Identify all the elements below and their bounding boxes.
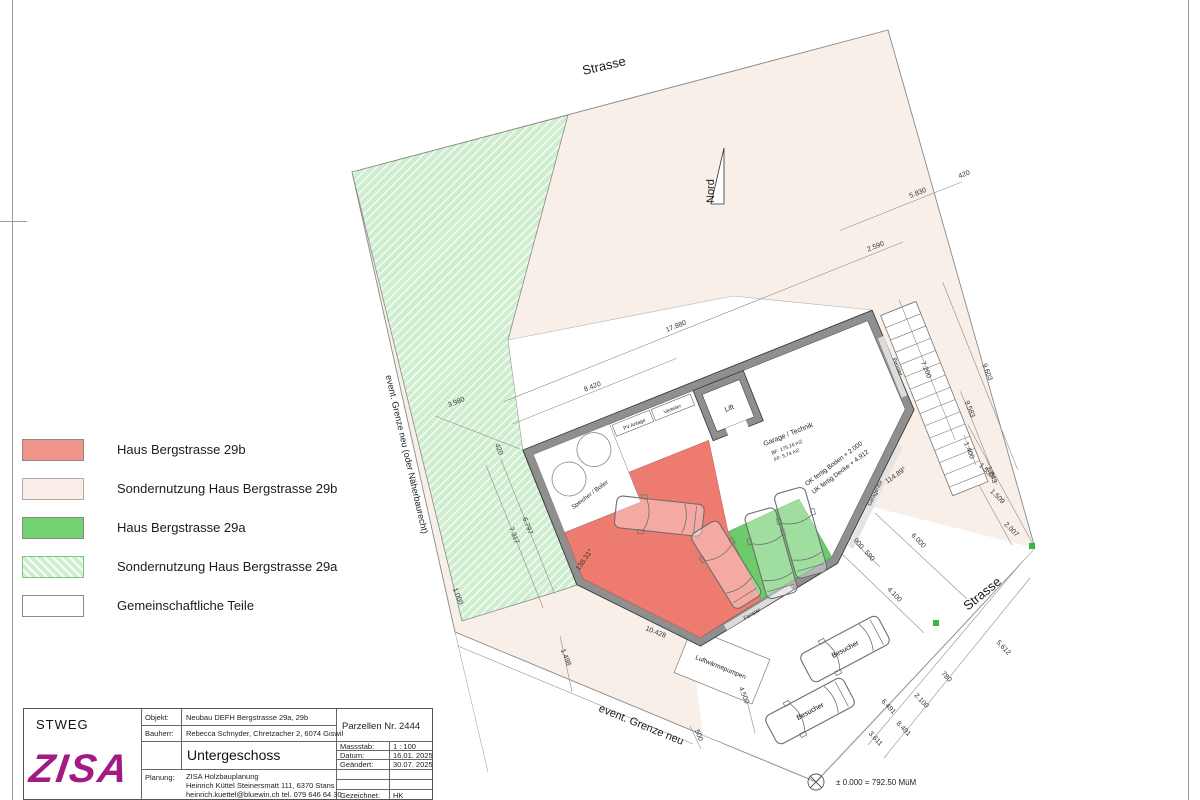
geaendert-label: Geändert: [340,760,373,769]
gezeichnet-value: HK [393,791,403,800]
north-label: Nord [705,179,717,203]
site-plan: LiftPV AnlageVerteilerSpeicher / BoilerG… [0,0,1200,800]
legend-item: Gemeinschaftliche Teile [22,586,352,625]
legend-item: Haus Bergstrasse 29b [22,430,352,469]
dim-label: 2.100 [913,692,930,710]
bauherr-label: Bauherr: [145,729,174,738]
legend-swatch [22,517,84,539]
dim-label: 420 [958,169,972,180]
dim-label: 3.611 [867,730,884,747]
planung-line2: Heinrich Küttel Steinersmatt 111, 6370 S… [186,781,335,790]
legend-item: Haus Bergstrasse 29a [22,508,352,547]
legend-item: Sondernutzung Haus Bergstrasse 29a [22,547,352,586]
legend-label: Sondernutzung Haus Bergstrasse 29a [117,559,337,574]
planung-line1: ZISA Holzbauplanung [186,772,259,781]
massstab-label: Massstab: [340,742,374,751]
legend-label: Sondernutzung Haus Bergstrasse 29b [117,481,337,496]
legend-swatch [22,439,84,461]
legend-swatch [22,595,84,617]
street-label-top: Strasse [581,53,627,78]
planung-label: Planung: [145,773,175,782]
legend-label: Gemeinschaftliche Teile [117,598,254,613]
drawing-page: LiftPV AnlageVerteilerSpeicher / BoilerG… [0,0,1200,800]
dim-label: 8.491 [895,720,912,738]
dim-label: 5.612 [995,639,1012,657]
datum-label: Datum: [340,751,364,760]
gezeichnet-label: Gezeichnet: [340,791,380,800]
geaendert-value: 30.07. 2025 [393,760,433,769]
legend-swatch [22,478,84,500]
planung-line3: heinrich.kuettel@bluewin.ch tel. 079 646… [186,790,342,799]
bauherr-value: Rebecca Schnyder, Chretzacher 2, 6074 Gi… [186,729,343,738]
benchmark-label: ± 0.000 = 792.50 MüM [836,778,917,787]
datum-value: 16.01. 2025 [393,751,433,760]
legend: Haus Bergstrasse 29bSondernutzung Haus B… [22,430,352,625]
boundary-extension [455,632,488,772]
dim-label: 780 [940,670,953,683]
objekt-label: Objekt: [145,713,169,722]
org-name: STWEG [36,717,89,732]
objekt-value: Neubau DEFH Bergstrasse 29a, 29b [186,713,308,722]
legend-label: Haus Bergstrasse 29a [117,520,246,535]
legend-swatch [22,556,84,578]
title-block: STWEG ZISA Objekt: Neubau DEFH Bergstras… [23,708,433,800]
parcel-number: Parzellen Nr. 2444 [342,721,420,732]
plan-title: Untergeschoss [187,747,280,763]
massstab-value: 1 : 100 [393,742,416,751]
legend-item: Sondernutzung Haus Bergstrasse 29b [22,469,352,508]
zisa-logo: ZISA [27,749,132,789]
legend-label: Haus Bergstrasse 29b [117,442,246,457]
